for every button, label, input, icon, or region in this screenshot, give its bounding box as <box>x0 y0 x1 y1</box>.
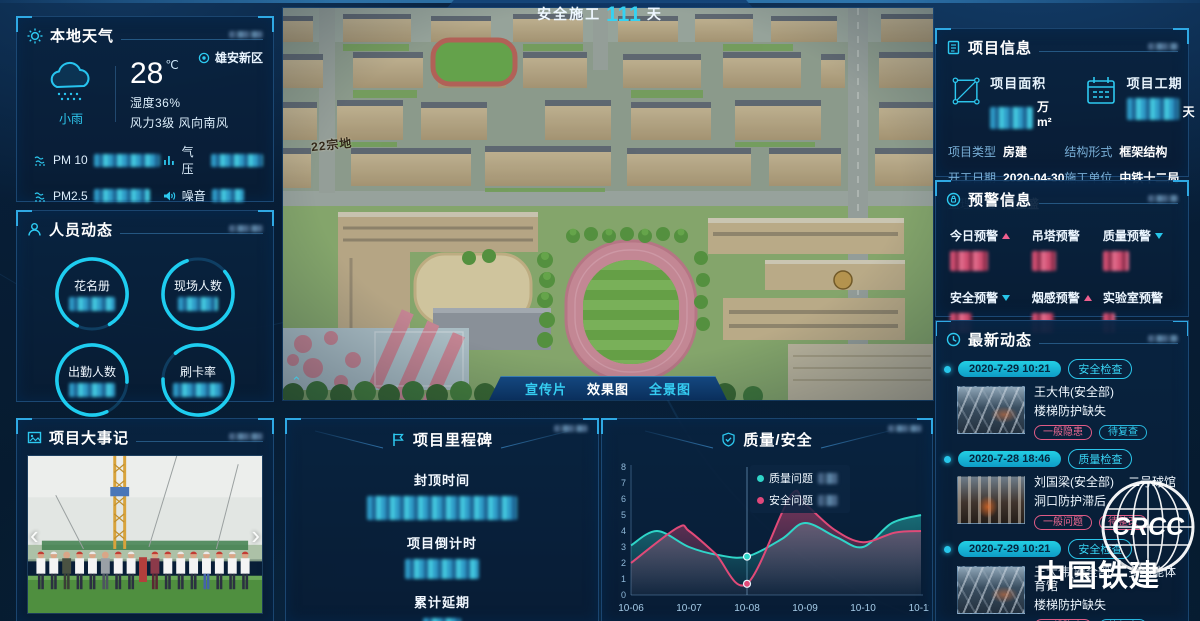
warning-today[interactable]: 今日预警 <box>950 227 1032 271</box>
hazard-level-badge: 一般问题 <box>1034 515 1092 531</box>
activity-date-badge: 2020-7-29 10:21 <box>958 541 1061 557</box>
panel-title: 质量/安全 <box>743 429 812 450</box>
panel-header: 最新动态 <box>936 321 1188 355</box>
svg-text:10-09: 10-09 <box>792 603 818 614</box>
activity-date-badge: 2020-7-28 18:46 <box>958 451 1061 467</box>
svg-text:10-08: 10-08 <box>734 603 760 614</box>
shield-check-icon <box>721 432 736 447</box>
gauge-label: 现场人数 <box>174 277 222 294</box>
weather-metrics: PM 10 气压 PM2.5 <box>17 131 273 204</box>
svg-text:3: 3 <box>621 542 626 552</box>
panel-project-events: 项目大事记 <box>16 418 274 621</box>
panel-header: 项目大事记 <box>17 419 273 453</box>
redacted-timestamp <box>888 425 922 432</box>
svg-text:4: 4 <box>621 526 626 536</box>
group-photo-graphic <box>28 456 262 613</box>
redacted-value <box>211 154 263 167</box>
activity-photo[interactable] <box>957 386 1025 434</box>
panel-title: 项目里程碑 <box>413 429 493 450</box>
stat-project-duration: 项目工期 天 <box>1083 73 1195 129</box>
activity-person: 王大伟(安全部) <box>1034 565 1114 579</box>
trend-down-icon <box>1155 233 1163 239</box>
trend-down-icon <box>1002 295 1010 301</box>
milestone-label: 封顶时间 <box>414 470 470 489</box>
metric-pm25: PM2.5 <box>33 187 162 204</box>
wind-text: 风力3级 风向南风 <box>130 114 229 131</box>
hazard-level-badge: 一般隐患 <box>1034 425 1092 441</box>
gauge-roster[interactable]: 花名册 <box>51 253 133 335</box>
panel-header: 预警信息 <box>936 181 1188 215</box>
safety-series-dot <box>757 497 764 504</box>
gauge-label: 出勤人数 <box>68 363 116 380</box>
svg-text:7: 7 <box>621 478 626 488</box>
header-title: 安全施工 <box>537 6 601 22</box>
warning-grid: 今日预警 吊塔预警 质量预警 安全预警 烟感预警 实验室预警 <box>936 215 1188 333</box>
particles-icon <box>33 189 47 203</box>
panel-title: 预警信息 <box>968 189 1032 210</box>
svg-text:10-06: 10-06 <box>618 603 644 614</box>
status-badge: 待整改 <box>1099 515 1147 531</box>
activity-item[interactable]: 2020-7-28 18:46 质量检查 刘国梁(安全部)二号球馆 洞口防护滞后… <box>944 449 1180 530</box>
panel-title: 本地天气 <box>50 25 114 46</box>
redacted-value <box>94 154 160 167</box>
header-wing-decor <box>820 431 888 449</box>
redacted-timestamp <box>554 425 588 432</box>
activity-type-badge: 安全检查 <box>1068 359 1132 379</box>
milestone-label: 累计延期 <box>414 592 470 611</box>
gauge-grid: 花名册 现场人数 出勤人数 <box>17 245 273 421</box>
header-wing-decor <box>315 431 383 449</box>
redacted-value <box>818 495 838 506</box>
stat-unit: 天 <box>1183 103 1195 120</box>
carousel-prev-arrow[interactable]: ‹ <box>30 522 39 548</box>
gauge-onsite-count[interactable]: 现场人数 <box>157 253 239 335</box>
pressure-icon <box>162 153 176 167</box>
dashboard: 22宗地 ⌃ 宣传片 效果图 全景图 安全施工111天 本地天气 <box>0 0 1200 621</box>
field-structure-type: 结构形式框架结构 <box>1064 143 1179 160</box>
redacted-value <box>818 473 838 484</box>
svg-text:0: 0 <box>621 590 626 600</box>
rain-cloud-icon <box>45 61 97 103</box>
quality-series-dot <box>757 475 764 482</box>
activity-issue: 楼梯防护缺失 <box>1034 405 1147 419</box>
redacted-timestamp <box>229 31 263 38</box>
view-button-render[interactable]: 效果图 <box>587 379 629 398</box>
particles-icon <box>33 153 47 167</box>
view-button-promo-video[interactable]: 宣传片 <box>525 379 567 398</box>
location-label: 雄安新区 <box>215 49 263 66</box>
redacted-timestamp <box>1148 43 1178 50</box>
panel-quality-safety: 质量/安全 01234567810-0610-0710-0810-0910-10… <box>601 418 933 621</box>
location-pin-icon <box>198 52 210 64</box>
svg-text:10-11: 10-11 <box>909 603 929 614</box>
photo-icon <box>27 430 42 445</box>
svg-text:1: 1 <box>621 574 626 584</box>
redacted-value <box>69 297 115 311</box>
corner-tick-decor: ⌃ <box>291 374 302 390</box>
panel-header: 质量/安全 <box>602 419 932 455</box>
svg-text:10-07: 10-07 <box>676 603 702 614</box>
stat-project-area: 项目面积 万m² <box>950 73 1061 129</box>
view-button-panorama[interactable]: 全景图 <box>649 379 691 398</box>
trend-up-icon <box>1084 295 1092 301</box>
tooltip-safety-row: 安全问题 <box>757 492 843 508</box>
page-header: 安全施工111天 <box>0 3 1200 27</box>
divider <box>115 66 116 122</box>
gauge-label: 刷卡率 <box>180 363 216 380</box>
header-wing-decor <box>501 431 569 449</box>
activity-list: 2020-7-29 10:21 安全检查 王大伟(安全部) 楼梯防护缺失 一般隐… <box>936 355 1188 621</box>
panel-title: 人员动态 <box>49 219 113 240</box>
svg-text:5: 5 <box>621 510 626 520</box>
stat-label: 项目面积 <box>990 73 1060 92</box>
carousel-next-arrow[interactable]: › <box>251 522 260 548</box>
area-icon <box>950 73 982 109</box>
panel-title: 项目信息 <box>968 37 1032 58</box>
metric-pressure: 气压 <box>162 143 263 177</box>
stat-label: 项目工期 <box>1127 73 1195 92</box>
redacted-timestamp <box>1148 335 1178 342</box>
metric-pm10: PM 10 <box>33 143 162 177</box>
bullet-dot <box>944 366 951 373</box>
activity-place: 二号球馆 <box>1128 475 1176 489</box>
milestone-countdown: 项目倒计时 <box>405 533 479 579</box>
svg-text:10-10: 10-10 <box>850 603 876 614</box>
milestone-topping-date: 封顶时间 <box>367 470 517 520</box>
field-project-type: 项目类型房建 <box>948 143 1064 160</box>
stat-unit: 万m² <box>1037 98 1061 129</box>
activity-item[interactable]: 2020-7-29 10:21 安全检查 王大伟(安全部) 楼梯防护缺失 一般隐… <box>944 359 1180 440</box>
bullet-dot <box>944 546 951 553</box>
activity-photo[interactable] <box>957 566 1025 614</box>
location-badge[interactable]: 雄安新区 <box>198 49 263 66</box>
metric-label: 气压 <box>182 143 206 177</box>
panel-milestone: 项目里程碑 封顶时间 项目倒计时 累计延期 <box>285 418 599 621</box>
activity-photo[interactable] <box>957 476 1025 524</box>
warning-crane[interactable]: 吊塔预警 <box>1032 227 1103 271</box>
safety-series-label: 安全问题 <box>769 492 813 508</box>
noise-speaker-icon <box>162 189 176 203</box>
redacted-value <box>405 559 479 579</box>
scene-3d-render[interactable]: 22宗地 ⌃ 宣传片 效果图 全景图 <box>283 8 933 400</box>
temperature-unit: ℃ <box>165 58 178 72</box>
metric-label: PM2.5 <box>53 189 88 203</box>
redacted-timestamp <box>229 433 263 440</box>
weather-condition: 小雨 <box>33 110 109 127</box>
activity-person: 王大伟(安全部) <box>1034 385 1114 399</box>
milestone-delay: 累计延期 <box>414 592 470 621</box>
panel-title: 最新动态 <box>968 329 1032 350</box>
panel-local-weather: 本地天气 雄安新区 小雨 28℃ 湿度36% 风力3级 风向南风 <box>16 16 274 202</box>
redacted-value <box>367 496 517 520</box>
activity-type-badge: 安全检查 <box>1068 539 1132 559</box>
alert-shield-icon <box>946 192 961 207</box>
flag-icon <box>391 432 406 447</box>
redacted-value <box>1032 251 1056 271</box>
redacted-value <box>950 251 988 271</box>
temperature-value: 28 <box>130 57 163 90</box>
view-switcher: 宣传片 效果图 全景图 <box>489 376 727 400</box>
panel-title: 项目大事记 <box>49 427 129 448</box>
status-badge: 待复查 <box>1099 425 1147 441</box>
redacted-value <box>212 189 244 202</box>
redacted-value <box>69 383 115 397</box>
activity-item[interactable]: 2020-7-29 10:21 安全检查 王大伟(安全部)多功能体育馆 楼梯防护… <box>944 539 1180 621</box>
activity-person: 刘国梁(安全部) <box>1034 475 1114 489</box>
activity-type-badge: 质量检查 <box>1068 449 1132 469</box>
panel-header: 项目信息 <box>936 29 1188 63</box>
redacted-value <box>178 297 218 311</box>
redacted-value <box>990 107 1033 129</box>
redacted-timestamp <box>229 225 263 232</box>
aerial-render-graphic <box>283 8 933 400</box>
warning-quality[interactable]: 质量预警 <box>1103 227 1174 271</box>
panel-activities: 最新动态 2020-7-29 10:21 安全检查 王大伟(安全部) 楼梯防护缺… <box>935 320 1189 621</box>
svg-text:6: 6 <box>621 494 626 504</box>
header-wing-decor <box>645 431 713 449</box>
trend-up-icon <box>1002 233 1010 239</box>
metric-label: 噪音 <box>182 187 206 204</box>
bullet-dot <box>944 456 951 463</box>
gear-sun-icon <box>27 28 43 44</box>
header-title-suffix: 天 <box>647 6 663 22</box>
panel-warnings: 预警信息 今日预警 吊塔预警 质量预警 安全预警 烟感预警 <box>935 180 1189 317</box>
calendar-icon <box>1083 73 1119 109</box>
milestone-list: 封顶时间 项目倒计时 累计延期 <box>286 455 598 621</box>
activity-date-badge: 2020-7-29 10:21 <box>958 361 1061 377</box>
metric-noise: 噪音 <box>162 187 263 204</box>
person-icon <box>27 222 42 237</box>
panel-personnel: 人员动态 花名册 现场人数 <box>16 210 274 402</box>
gauge-label: 花名册 <box>74 277 110 294</box>
quality-series-label: 质量问题 <box>769 470 813 486</box>
gauge-swipe-rate[interactable]: 刷卡率 <box>157 339 239 421</box>
svg-text:2: 2 <box>621 558 626 568</box>
document-icon <box>946 40 961 55</box>
redacted-timestamp <box>1148 195 1178 202</box>
humidity-text: 湿度36% <box>130 94 229 111</box>
panel-header: 项目里程碑 <box>286 419 598 455</box>
gauge-attendance-count[interactable]: 出勤人数 <box>51 339 133 421</box>
activity-issue: 楼梯防护缺失 <box>1034 599 1180 613</box>
project-stats: 项目面积 万m² 项目工期 天 <box>936 63 1188 131</box>
metric-label: PM 10 <box>53 153 88 167</box>
panel-project-info: 项目信息 项目面积 万m² <box>935 28 1189 177</box>
safe-days-count: 111 <box>606 3 642 26</box>
tooltip-quality-row: 质量问题 <box>757 470 843 486</box>
chart-tooltip: 质量问题 安全问题 <box>750 465 850 513</box>
redacted-value <box>173 383 223 397</box>
milestone-label: 项目倒计时 <box>407 533 477 552</box>
clock-icon <box>946 332 961 347</box>
panel-header: 人员动态 <box>17 211 273 245</box>
redacted-value <box>1103 251 1129 271</box>
redacted-value <box>94 189 150 202</box>
redacted-value <box>1127 98 1179 120</box>
event-photo[interactable]: ‹ › <box>27 455 263 614</box>
activity-issue: 洞口防护滞后 <box>1034 495 1176 509</box>
svg-text:8: 8 <box>621 462 626 472</box>
